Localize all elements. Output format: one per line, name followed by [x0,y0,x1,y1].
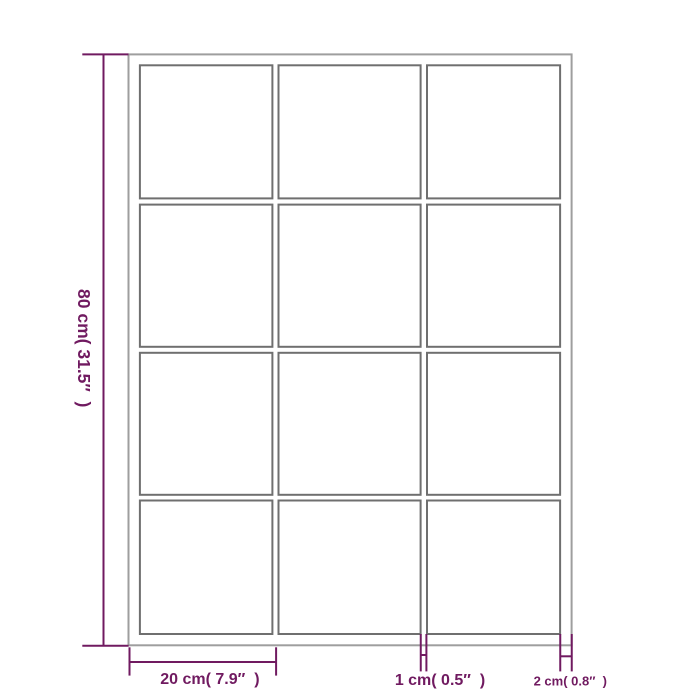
svg-text:80 cm( 31.5″ ): 80 cm( 31.5″ ) [74,289,94,407]
svg-text:20 cm( 7.9″ ): 20 cm( 7.9″ ) [160,671,259,688]
svg-text:2 cm( 0.8″ ): 2 cm( 0.8″ ) [534,674,607,689]
svg-text:1 cm( 0.5″ ): 1 cm( 0.5″ ) [395,672,485,689]
